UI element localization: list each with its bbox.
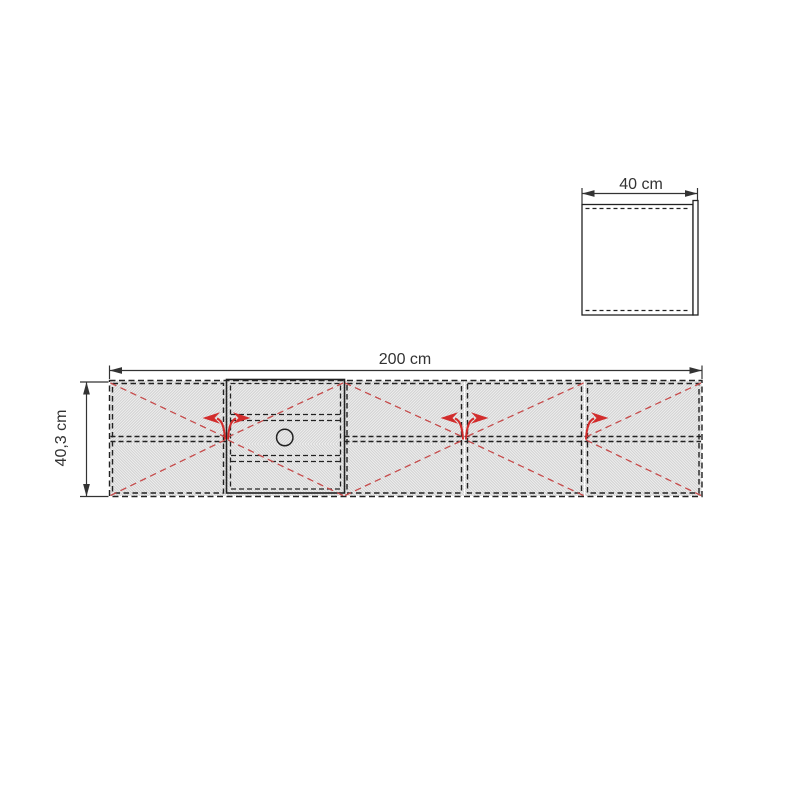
- side-view: [582, 201, 698, 316]
- width-dimension: 200 cm: [110, 351, 703, 379]
- height-dimension: 40,3 cm: [53, 382, 109, 497]
- dimension-arrowhead: [690, 367, 703, 374]
- height-dimension-label: 40,3 cm: [53, 410, 70, 467]
- front-view: [47, 380, 765, 497]
- technical-drawing: 200 cm 40,3 cm 40 cm: [0, 0, 800, 800]
- dimension-arrowhead: [110, 367, 123, 374]
- dimension-arrowhead: [83, 484, 90, 497]
- dimension-arrowhead: [83, 382, 90, 395]
- dimension-arrowhead: [582, 190, 595, 197]
- furniture-diagram: 200 cm 40,3 cm 40 cm: [0, 0, 800, 800]
- width-dimension-label: 200 cm: [379, 351, 431, 368]
- front-texture: [47, 381, 765, 497]
- depth-dimension: 40 cm: [582, 176, 698, 204]
- depth-dimension-label: 40 cm: [619, 176, 663, 193]
- dimension-arrowhead: [685, 190, 698, 197]
- side-front-panel: [693, 201, 698, 316]
- side-carcass: [582, 205, 693, 316]
